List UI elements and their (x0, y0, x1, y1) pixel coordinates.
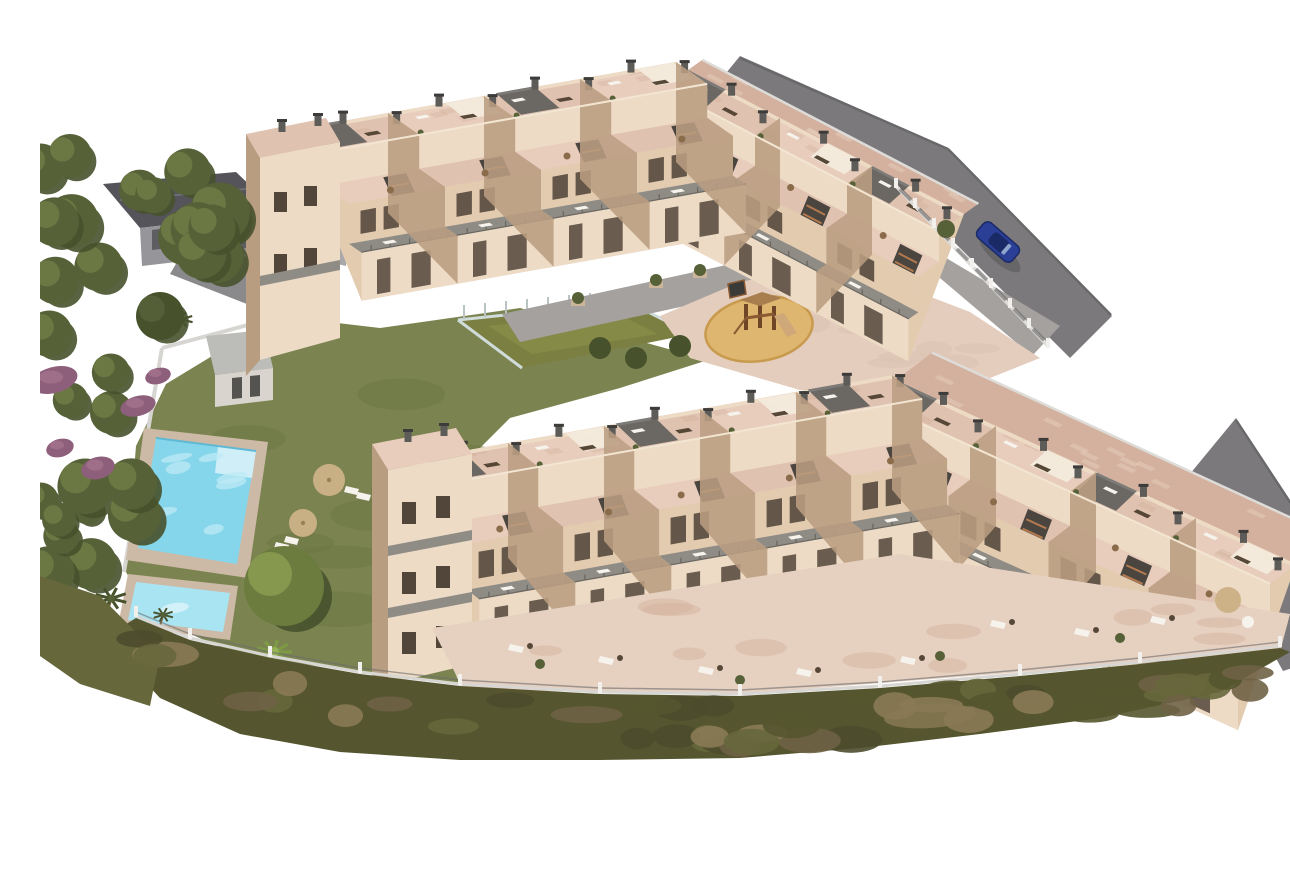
blob (357, 378, 445, 410)
fence-post (1138, 652, 1142, 663)
chimney (759, 112, 766, 123)
fence-post (598, 682, 602, 693)
window (671, 515, 686, 544)
blob (926, 624, 981, 639)
chimney (843, 375, 850, 386)
patio-plant (1115, 633, 1125, 643)
terrace-table (887, 457, 894, 464)
blob (1161, 695, 1196, 717)
chimney-cap (1039, 438, 1049, 441)
chimney-cap (942, 206, 952, 209)
chimney-cap (530, 77, 540, 80)
chimney-cap (973, 419, 983, 422)
terrace-table (1112, 544, 1119, 551)
pool-house-door (232, 377, 242, 399)
window (304, 186, 317, 206)
window (553, 174, 568, 200)
tower-front (260, 142, 340, 360)
blob (161, 612, 166, 617)
window (402, 572, 416, 594)
chimney-cap (895, 374, 905, 377)
terrace-table (387, 186, 394, 193)
fence-post (989, 278, 993, 288)
patio-plant (735, 675, 745, 685)
chimney (555, 426, 562, 437)
blob (107, 595, 115, 603)
chimney-cap (850, 158, 860, 161)
window (473, 240, 486, 277)
chimney-cap (650, 407, 660, 410)
chimney-cap (511, 442, 521, 445)
blob (551, 706, 623, 723)
blob (621, 728, 655, 749)
fence-post (188, 628, 192, 639)
chimney-cap (584, 77, 594, 80)
tower-side (246, 134, 260, 376)
blob (137, 180, 157, 200)
chimney-cap (746, 390, 756, 393)
chimney (315, 115, 322, 126)
blob (149, 369, 162, 377)
blob (1222, 665, 1274, 680)
fence-post (951, 238, 955, 248)
fence-rail (600, 692, 740, 694)
chimney-cap (911, 179, 921, 182)
blob (428, 718, 479, 734)
blob (138, 296, 164, 322)
blob (1151, 603, 1196, 615)
window (569, 223, 582, 260)
chimney-cap (626, 60, 636, 63)
window (402, 502, 416, 524)
chimney (1140, 486, 1147, 497)
fence-post (1046, 338, 1050, 348)
chimney-cap (554, 424, 564, 427)
terrace-table (787, 184, 794, 191)
chimney (747, 392, 754, 403)
chimney (912, 181, 919, 192)
terrace-table (563, 152, 570, 159)
chimney (728, 85, 735, 96)
blob (50, 137, 74, 161)
fence-post (932, 218, 936, 228)
blob (50, 441, 64, 450)
blob (1193, 633, 1245, 645)
blob (328, 704, 363, 727)
window (649, 157, 664, 183)
chimney-cap (439, 423, 449, 426)
render-canvas (40, 16, 1290, 856)
blob (691, 726, 729, 748)
fence-post (970, 258, 974, 268)
window (508, 233, 527, 271)
window (274, 192, 287, 212)
chimney (851, 160, 858, 171)
blob (928, 658, 967, 673)
blob (367, 696, 412, 711)
chimney-cap (758, 110, 768, 113)
terrace-table (678, 135, 685, 142)
window (361, 208, 376, 234)
pool-house-door (250, 375, 260, 397)
blob (954, 343, 1000, 353)
fence-post (134, 606, 138, 617)
fence-post (458, 674, 462, 685)
terrace-table (990, 498, 997, 505)
chimney (628, 62, 635, 73)
blob (693, 695, 735, 716)
chimney (1175, 513, 1182, 524)
patio-table (717, 665, 723, 671)
blob (1013, 690, 1054, 714)
fence-post (268, 646, 272, 657)
blob (92, 394, 116, 418)
window (767, 498, 782, 527)
chimney (1275, 559, 1282, 570)
planter-bush (650, 274, 662, 286)
window (575, 532, 590, 561)
chimney-cap (488, 94, 498, 97)
chimney-cap (1273, 557, 1283, 560)
chimney (405, 431, 412, 442)
patio-table (1169, 615, 1175, 621)
blob (273, 671, 307, 696)
planter-bush (694, 264, 706, 276)
fence-post (894, 178, 898, 188)
blob (87, 460, 104, 471)
fence-post (1278, 636, 1282, 647)
chimney (441, 425, 448, 436)
blob (763, 712, 821, 738)
chimney-cap (1139, 484, 1149, 487)
patio-plant (535, 659, 545, 669)
chimney-cap (727, 83, 737, 86)
fence-post (358, 662, 362, 673)
chimney (1040, 440, 1047, 451)
fence-post (1027, 318, 1031, 328)
chimney-cap (1173, 511, 1183, 514)
terrace-table (482, 169, 489, 176)
fence-post (1018, 664, 1022, 675)
patio-parasol (1215, 587, 1241, 613)
window (863, 481, 878, 510)
blob (133, 644, 176, 668)
terrace-table (678, 491, 685, 498)
terrace-table (880, 232, 887, 239)
fence-bush (937, 220, 955, 238)
blob (673, 648, 707, 661)
blob (1114, 609, 1153, 626)
chimney-cap (1073, 465, 1083, 468)
patio-table (527, 643, 533, 649)
chimney (820, 133, 827, 144)
patio-table (617, 655, 623, 661)
blob (40, 371, 63, 384)
patio-table (919, 655, 925, 661)
blob (223, 692, 277, 712)
blob (126, 398, 144, 408)
blob (167, 152, 193, 178)
window (412, 250, 431, 288)
window (700, 199, 719, 237)
window (665, 206, 678, 243)
fence-post (913, 198, 917, 208)
chimney-cap (392, 111, 402, 114)
patio-pouf (1242, 616, 1254, 628)
chimney (436, 96, 443, 107)
blob (1196, 617, 1243, 627)
chimney-cap (607, 425, 617, 428)
blob (191, 208, 217, 234)
blob (1060, 705, 1118, 722)
tower-side (372, 444, 388, 700)
window (402, 632, 416, 654)
terrace-table (605, 508, 612, 515)
chimney-cap (819, 131, 829, 134)
fence-post (878, 676, 882, 687)
window (479, 549, 494, 578)
fence-post (738, 684, 742, 695)
blob (842, 652, 895, 668)
chimney-cap (939, 392, 949, 395)
chimney (975, 421, 982, 432)
chimney-cap (1239, 530, 1249, 533)
blob (630, 697, 682, 715)
chimney-cap (434, 94, 444, 97)
chimney (940, 394, 947, 405)
chimney (1075, 467, 1082, 478)
patio-plant (935, 651, 945, 661)
chimney (651, 409, 658, 420)
planter-bush (572, 292, 584, 304)
chimney (532, 79, 539, 90)
chimney-cap (313, 113, 323, 116)
blob (44, 505, 63, 524)
window (436, 496, 450, 518)
chimney (943, 208, 950, 219)
window (377, 257, 390, 294)
hedge-bush (669, 335, 691, 357)
chimney-cap (703, 408, 713, 411)
blob (735, 639, 787, 656)
terrace-table (786, 474, 793, 481)
architectural-render: upper apartment row with roof terraceslo… (40, 16, 1290, 856)
chimney-cap (680, 60, 690, 63)
chimney-cap (799, 391, 809, 394)
hedge-bush (625, 347, 647, 369)
patio-table (1093, 627, 1099, 633)
chimney (279, 121, 286, 132)
chimney-cap (842, 373, 852, 376)
fence-post (1008, 298, 1012, 308)
blob (487, 692, 535, 708)
chimney-cap (277, 119, 287, 122)
blob (94, 356, 115, 377)
parasol-pole (301, 521, 305, 525)
chimney-cap (338, 111, 348, 114)
play-sign (728, 280, 746, 298)
chimney (1240, 532, 1247, 543)
terrace-table (496, 525, 503, 532)
blob (248, 552, 292, 596)
chimney-cap (403, 429, 413, 432)
patio-table (815, 667, 821, 673)
terrace-table (1206, 590, 1213, 597)
upper-row-end-tower (246, 113, 340, 376)
window (457, 191, 472, 217)
blob (529, 645, 562, 655)
window (604, 216, 623, 254)
chimney (340, 113, 347, 124)
window (436, 566, 450, 588)
hedge-bush (589, 337, 611, 359)
parasol-pole (327, 478, 331, 482)
blob (638, 598, 693, 615)
patio-table (1009, 619, 1015, 625)
